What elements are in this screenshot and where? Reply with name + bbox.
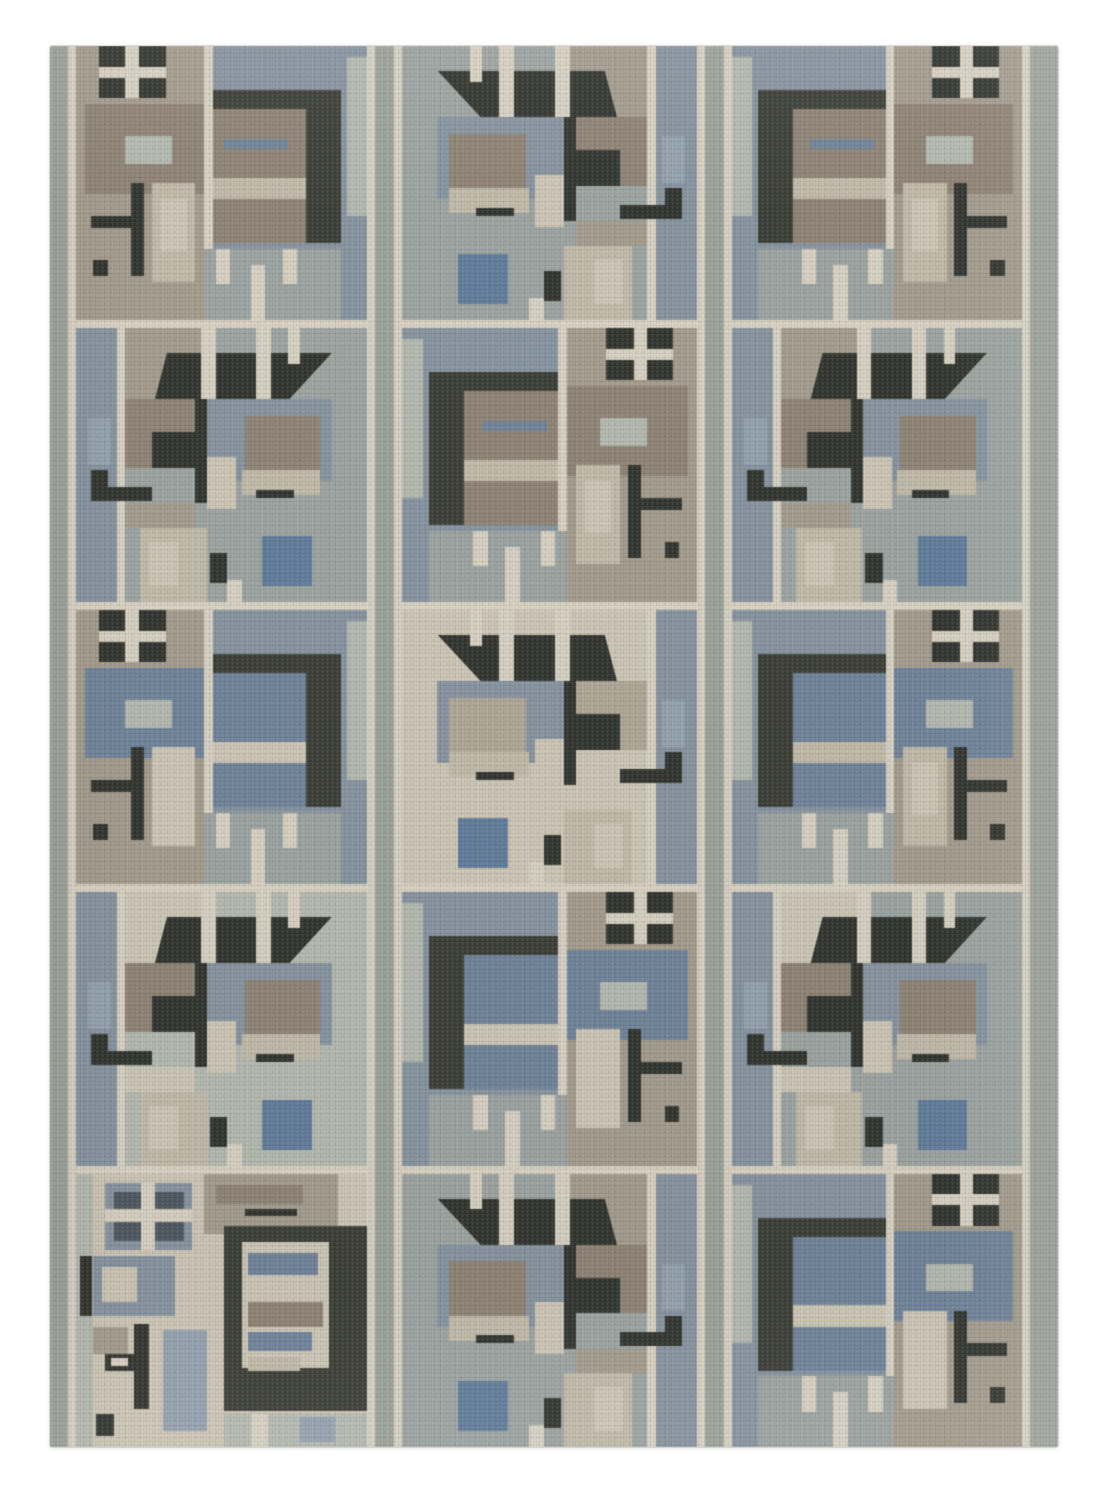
rug-motif-shape <box>620 1332 682 1346</box>
rug-motif-shape <box>563 681 576 785</box>
rug-motif-shape <box>227 580 242 602</box>
rug-motif-shape <box>216 813 231 849</box>
rug-motif-shape <box>662 700 686 747</box>
rug-motif-shape <box>912 1327 938 1379</box>
rug-motif-shape <box>912 1054 950 1062</box>
rug-motif-shape <box>912 199 938 251</box>
rug-motif-shape <box>262 1100 311 1149</box>
rug-motif-shape <box>332 328 367 602</box>
rug-motif-shape <box>117 892 126 1166</box>
rug-motif-shape <box>987 328 1022 602</box>
rug-motif-shape <box>248 1332 312 1351</box>
rug-motif-shape <box>886 1174 895 1376</box>
rug-motif-shape <box>91 216 143 228</box>
rug-motif-shape <box>758 654 793 807</box>
rug-motif-shape <box>473 531 488 567</box>
rug-motif-shape <box>600 982 647 1009</box>
rug-motif-shape <box>152 432 196 468</box>
rug-motif-shape <box>88 418 111 465</box>
rug-motif-shape <box>306 90 341 243</box>
rug-pattern-tile <box>76 46 367 320</box>
rug-motif-shape <box>802 1376 817 1411</box>
rug-motif-shape <box>93 1327 128 1354</box>
rug-motif-shape <box>662 136 686 183</box>
rug-motif-shape <box>283 249 298 285</box>
rug-motif-shape <box>732 621 752 780</box>
rug-motif-shape <box>499 46 514 117</box>
rug-motif-shape <box>535 1302 565 1354</box>
rug-motif-shape <box>91 1051 152 1065</box>
rug-motif-shape <box>802 249 817 285</box>
rug-motif-shape <box>744 982 767 1029</box>
rug-motif-shape <box>88 982 111 1029</box>
rug-motif-shape <box>541 531 556 567</box>
rug-motif-shape <box>585 1045 612 1097</box>
rug-motif-shape <box>458 1381 508 1430</box>
rug-motif-shape <box>134 1324 149 1409</box>
rug-motif-shape <box>105 1209 192 1221</box>
rug-motif-shape <box>656 610 697 884</box>
rug-motif-shape <box>125 700 172 727</box>
rug-motif-shape <box>912 892 927 963</box>
rug-motif-shape <box>576 1278 620 1313</box>
rug-motif-shape <box>563 117 576 221</box>
rug-motif-shape <box>541 1095 556 1131</box>
rug-motif-shape <box>793 199 886 243</box>
rug-motif-shape <box>555 46 570 117</box>
rug-motif-shape <box>216 1185 303 1204</box>
rug-motif-shape <box>160 199 186 251</box>
rug-stripe-band <box>705 46 724 1447</box>
rug-motif-shape <box>926 136 972 163</box>
rug-motif-shape <box>900 980 975 1040</box>
rug-motif-shape <box>834 265 849 320</box>
rug-motif-shape <box>732 892 773 1166</box>
rug-motif-shape <box>932 67 999 78</box>
rug-motif-shape <box>402 1174 437 1447</box>
rug-pattern-tile <box>76 1174 367 1447</box>
rug-motif-shape <box>529 862 544 884</box>
rug-motif-shape <box>629 1062 682 1074</box>
rug-motif-shape <box>93 824 108 840</box>
rug-motif-shape <box>125 1067 195 1092</box>
rug-motif-shape <box>449 1261 526 1321</box>
rug-motif-shape <box>810 703 874 713</box>
rug-motif-shape <box>207 1021 236 1073</box>
rug-motif-shape <box>781 1067 851 1092</box>
rug-motif-shape <box>886 46 895 249</box>
rug-motif-shape <box>470 610 482 646</box>
rug-motif-shape <box>476 208 514 216</box>
rug-motif-shape <box>476 1335 514 1343</box>
rug-motif-shape <box>918 536 967 585</box>
rug-pattern-tile <box>76 892 367 1166</box>
rug-motif-shape <box>732 57 752 216</box>
rug-motif-shape <box>781 503 851 528</box>
rug-motif-shape <box>576 785 647 810</box>
rug-motif-shape <box>332 892 367 1166</box>
rug-motif-shape <box>576 221 647 246</box>
rug-motif-shape <box>227 1144 242 1166</box>
rug-motif-shape <box>563 1245 576 1349</box>
rug-motif-shape <box>620 769 682 783</box>
rug-motif-shape <box>926 1264 972 1291</box>
rug-motif-shape <box>758 1218 793 1371</box>
rug-motif-shape <box>245 416 321 476</box>
rug-motif-shape <box>990 260 1005 276</box>
rug-motif-shape <box>76 892 117 1166</box>
rug-motif-shape <box>402 339 423 498</box>
rug-motif-shape <box>473 1095 488 1131</box>
rug-motif-shape <box>555 610 570 681</box>
rug-motif-shape <box>732 328 773 602</box>
rug-motif-shape <box>926 700 972 727</box>
rug-stripe-band <box>394 46 402 1447</box>
rug-motif-shape <box>793 763 886 807</box>
rug-motif-shape <box>773 892 782 1166</box>
rug-motif-shape <box>93 260 108 276</box>
rug-motif-shape <box>773 328 782 602</box>
rug-motif-shape <box>125 503 195 528</box>
rug-motif-shape <box>300 1417 335 1442</box>
rug-motif-shape <box>558 328 567 531</box>
rug-motif-shape <box>476 772 514 780</box>
rug-motif-shape <box>210 553 227 583</box>
rug-motif-shape <box>464 1045 558 1089</box>
rug-motif-shape <box>955 216 1007 228</box>
rug-pattern-tile <box>76 328 367 602</box>
rug-motif-shape <box>865 553 882 583</box>
rug-motif-shape <box>535 175 565 227</box>
rug-motif-shape <box>256 490 294 498</box>
rug-pattern-tile <box>732 46 1022 320</box>
rug-motif-shape <box>117 328 126 602</box>
rug-motif-shape <box>793 178 886 200</box>
rug-pattern-tile <box>732 1174 1022 1447</box>
rug-motif-shape <box>544 835 562 865</box>
rug-motif-shape <box>932 1194 999 1205</box>
rug-motif-shape <box>793 1305 886 1327</box>
rug-motif-shape <box>585 481 612 533</box>
rug-motif-shape <box>863 457 892 509</box>
rug-motif-shape <box>662 1264 686 1310</box>
rug-motif-shape <box>204 46 213 249</box>
rug-motif-shape <box>747 487 808 501</box>
rug-motif-shape <box>944 892 956 928</box>
rug-motif-shape <box>529 1425 544 1447</box>
rug-motif-shape <box>458 818 508 867</box>
rug-motif-shape <box>954 747 967 840</box>
rug-motif-shape <box>886 610 895 813</box>
rug-motif-shape <box>125 136 172 163</box>
rug-motif-shape <box>213 763 306 807</box>
rug-motif-shape <box>131 183 144 276</box>
rug-motif-shape <box>883 580 898 602</box>
rug-pattern-tile <box>732 328 1022 602</box>
rug-motif-shape <box>256 892 271 963</box>
rug-motif-shape <box>224 703 288 713</box>
rug-motif-shape <box>918 1100 967 1149</box>
rug-motif-shape <box>482 985 547 995</box>
rug-motif-shape <box>863 1021 892 1073</box>
rug-motif-shape <box>576 150 620 186</box>
rug-motif-shape <box>470 46 482 82</box>
rug-motif-shape <box>207 457 236 509</box>
rug-motif-shape <box>620 205 682 219</box>
rug-motif-shape <box>594 824 624 868</box>
rug-motif-shape <box>449 698 526 758</box>
rug-motif-shape <box>944 328 956 364</box>
rug-motif-shape <box>868 813 883 849</box>
rug-motif-shape <box>464 481 558 525</box>
rug-motif-shape <box>594 260 624 304</box>
rug-motif-shape <box>248 1253 318 1275</box>
rug-motif-shape <box>810 1267 874 1277</box>
rug-motif-shape <box>544 1398 562 1428</box>
rug-stripe-band <box>724 46 732 1447</box>
rug-motif-shape <box>248 1302 324 1327</box>
rug-motif-shape <box>429 936 464 1089</box>
rug-motif-shape <box>954 1311 967 1404</box>
rug-motif-shape <box>747 1051 808 1065</box>
rug-motif-shape <box>429 372 464 525</box>
rug-motif-shape <box>131 747 144 840</box>
rug-motif-shape <box>245 980 321 1040</box>
rug-motif-shape <box>288 892 300 928</box>
rug-motif-shape <box>402 46 437 320</box>
rug-motif-shape <box>606 913 674 924</box>
rug-stripe-band <box>50 46 68 1447</box>
rug-motif-shape <box>758 90 793 243</box>
rug-motif-shape <box>99 631 166 642</box>
rug-motif-shape <box>647 610 656 884</box>
rug-motif-shape <box>665 542 680 558</box>
rug-pattern-tile <box>402 1174 697 1447</box>
rug-motif-shape <box>912 328 927 399</box>
rug-pattern-tile <box>402 328 697 602</box>
rug-motif-shape <box>201 892 216 963</box>
rug-pattern-tile <box>402 610 697 884</box>
rug-motif-shape <box>529 298 544 320</box>
rug-motif-shape <box>160 763 186 815</box>
rug-motif-shape <box>482 421 547 431</box>
rug-motif-shape <box>932 631 999 642</box>
rug-motif-shape <box>807 996 851 1032</box>
rug-motif-shape <box>665 1106 680 1122</box>
rug <box>50 46 1058 1447</box>
rug-motif-shape <box>505 1111 520 1166</box>
rug-motif-shape <box>628 465 641 558</box>
rug-motif-shape <box>987 892 1022 1166</box>
rug-motif-shape <box>883 1144 898 1166</box>
rug-motif-shape <box>912 763 938 815</box>
rug-motif-shape <box>857 892 872 963</box>
rug-motif-shape <box>499 1174 514 1245</box>
rug-motif-shape <box>868 249 883 285</box>
rug-motif-shape <box>224 139 288 149</box>
rug-motif-shape <box>102 1267 137 1302</box>
rug-motif-shape <box>111 1358 128 1366</box>
rug-motif-shape <box>149 1106 178 1150</box>
rug-motif-shape <box>990 1387 1005 1403</box>
rug-pattern-tile <box>402 892 697 1166</box>
rug-motif-shape <box>224 1414 367 1447</box>
rug-motif-shape <box>505 547 520 602</box>
rug-motif-shape <box>213 178 306 200</box>
rug-motif-shape <box>251 1414 268 1447</box>
rug-motif-shape <box>251 265 266 320</box>
rug-motif-shape <box>96 1414 113 1436</box>
rug-motif-shape <box>213 199 306 243</box>
rug-motif-shape <box>955 1343 1007 1355</box>
rug-motif-shape <box>594 1387 624 1431</box>
rug-stripe-band <box>697 46 705 1447</box>
rug-motif-shape <box>251 829 266 884</box>
rug-motif-shape <box>834 829 849 884</box>
rug-motif-shape <box>600 418 647 445</box>
rug-motif-shape <box>283 813 298 849</box>
rug-motif-shape <box>152 996 196 1032</box>
rug-pattern-tile <box>732 610 1022 884</box>
rug-motif-shape <box>744 418 767 465</box>
rug-motif-shape <box>99 67 166 78</box>
rug-motif-shape <box>256 1054 294 1062</box>
rug-stripe-band <box>1030 46 1058 1447</box>
rug-motif-shape <box>647 1174 656 1447</box>
rug-motif-shape <box>288 328 300 364</box>
rug-motif-shape <box>628 1029 641 1122</box>
rug-motif-shape <box>201 328 216 399</box>
rug-motif-shape <box>555 1174 570 1245</box>
rug-motif-shape <box>912 490 950 498</box>
rug-motif-shape <box>857 328 872 399</box>
rug-motif-shape <box>248 1357 300 1371</box>
rug-motif-shape <box>347 621 367 780</box>
rug-motif-shape <box>464 1024 558 1046</box>
rug-motif-shape <box>955 780 1007 792</box>
rug-motif-shape <box>954 183 967 276</box>
rug-motif-shape <box>576 714 620 750</box>
rug-motif-shape <box>256 328 271 399</box>
rug-motif-shape <box>732 1185 752 1343</box>
rug-pattern-tile <box>76 610 367 884</box>
rug-motif-shape <box>149 542 178 586</box>
rug-motif-shape <box>558 892 567 1095</box>
rug-pattern-layer <box>50 46 1058 1447</box>
rug-stripe-band <box>375 46 394 1447</box>
rug-motif-shape <box>306 654 341 807</box>
photo-canvas <box>0 0 1112 1500</box>
rug-motif-shape <box>91 487 152 501</box>
rug-motif-shape <box>464 460 558 482</box>
rug-motif-shape <box>402 610 437 884</box>
rug-pattern-tile <box>732 892 1022 1166</box>
rug-motif-shape <box>216 249 231 285</box>
rug-stripe-band <box>367 46 375 1447</box>
rug-motif-shape <box>163 1330 207 1431</box>
rug-motif-shape <box>499 610 514 681</box>
rug-motif-shape <box>629 498 682 510</box>
rug-motif-shape <box>204 610 213 813</box>
rug-motif-shape <box>213 742 306 764</box>
rug-motif-shape <box>656 46 697 320</box>
rug-motif-shape <box>576 1349 647 1374</box>
rug-motif-shape <box>76 328 117 602</box>
rug-motif-shape <box>900 416 975 476</box>
rug-motif-shape <box>535 739 565 791</box>
rug-motif-shape <box>470 1174 482 1209</box>
rug-motif-shape <box>91 780 143 792</box>
rug-motif-shape <box>805 1106 834 1150</box>
rug-motif-shape <box>656 1174 697 1447</box>
rug-motif-shape <box>449 134 526 194</box>
rug-motif-shape <box>544 271 562 301</box>
rug-stripe-band <box>68 46 76 1447</box>
rug-motif-shape <box>245 1209 297 1216</box>
rug-motif-shape <box>347 57 367 216</box>
rug-motif-shape <box>990 824 1005 840</box>
rug-motif-shape <box>80 1256 92 1316</box>
rug-stripe-band <box>1022 46 1030 1447</box>
rug-motif-shape <box>865 1117 882 1147</box>
rug-motif-shape <box>807 432 851 468</box>
rug-motif-shape <box>402 903 423 1062</box>
rug-motif-shape <box>458 254 508 303</box>
rug-motif-shape <box>793 742 886 764</box>
rug-pattern-tile <box>402 46 697 320</box>
rug-motif-shape <box>868 1376 883 1411</box>
rug-motif-shape <box>834 1392 849 1447</box>
rug-motif-shape <box>810 139 874 149</box>
rug-motif-shape <box>793 1327 886 1371</box>
rug-motif-shape <box>647 46 656 320</box>
rug-motif-shape <box>262 536 311 585</box>
rug-motif-shape <box>802 813 817 849</box>
rug-motif-shape <box>210 1117 227 1147</box>
rug-motif-shape <box>606 349 674 360</box>
rug-motif-shape <box>805 542 834 586</box>
